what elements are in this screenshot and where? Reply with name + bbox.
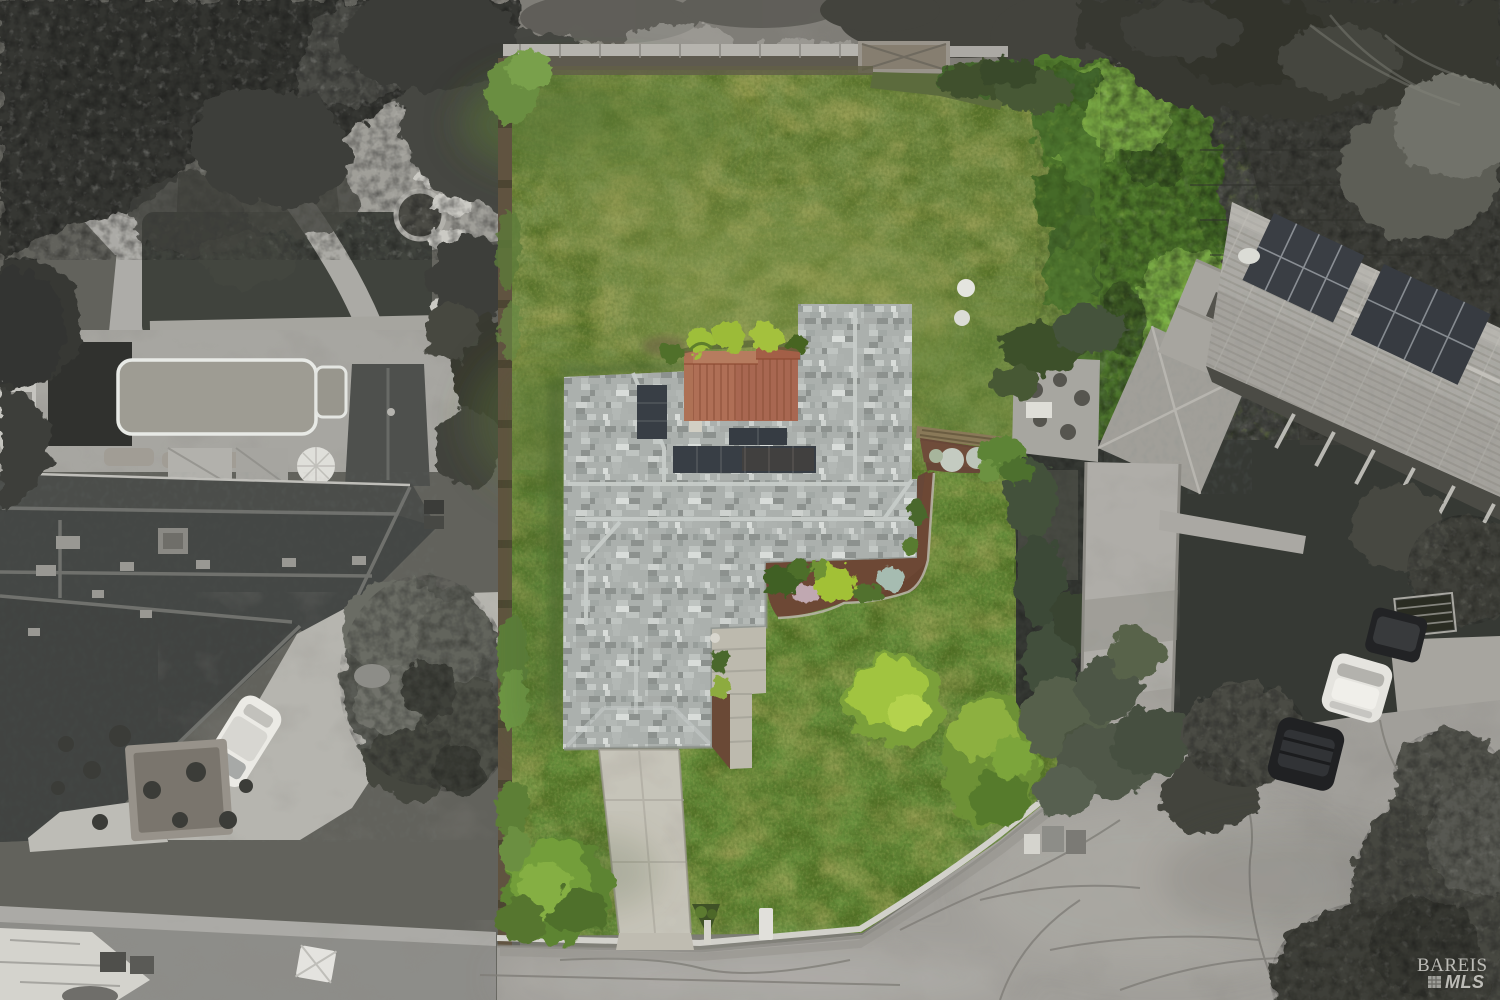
svg-text:MLS: MLS (1445, 972, 1485, 992)
